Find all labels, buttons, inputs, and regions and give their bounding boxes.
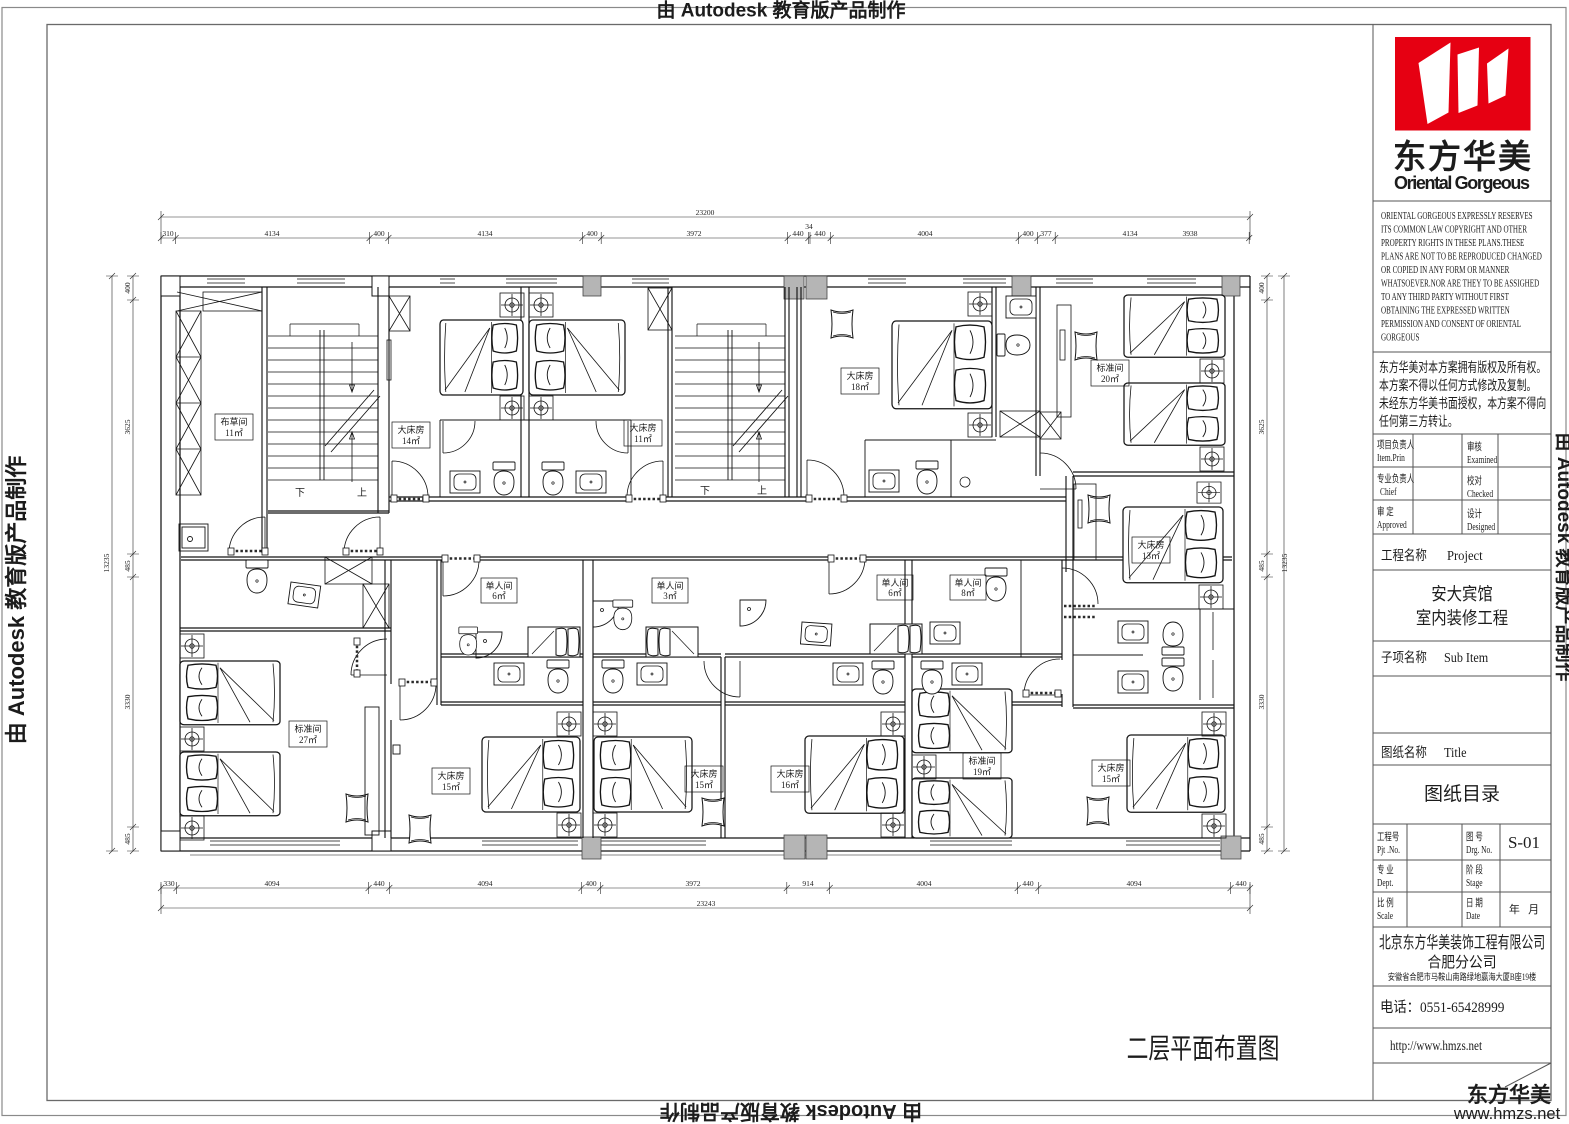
- svg-text:485: 485: [123, 833, 132, 845]
- svg-text:大床房: 大床房: [776, 768, 803, 779]
- svg-text:Dept.: Dept.: [1377, 877, 1393, 889]
- svg-text:大床房: 大床房: [1137, 539, 1164, 550]
- svg-text:上: 上: [757, 485, 767, 497]
- svg-text:11㎡: 11㎡: [634, 434, 652, 444]
- svg-text:Oriental Gorgeous: Oriental Gorgeous: [1394, 173, 1530, 193]
- svg-text:下: 下: [295, 488, 305, 499]
- svg-text:4094: 4094: [1127, 879, 1142, 888]
- svg-text:大床房: 大床房: [397, 424, 424, 435]
- svg-text:Stage: Stage: [1466, 877, 1483, 889]
- svg-text:标准间: 标准间: [294, 723, 321, 734]
- svg-text:PERMISSION AND CONSENT OF ORIE: PERMISSION AND CONSENT OF ORIENTAL: [1381, 318, 1521, 330]
- svg-text:15㎡: 15㎡: [442, 782, 460, 792]
- svg-text:3625: 3625: [123, 419, 132, 434]
- svg-text:400: 400: [123, 282, 132, 294]
- svg-text:S-01: S-01: [1508, 833, 1540, 852]
- svg-text:单人间: 单人间: [656, 580, 683, 591]
- svg-text:OBTAINING THE EXPRESSED WRITTE: OBTAINING THE EXPRESSED WRITTEN: [1381, 304, 1510, 316]
- svg-text:合肥分公司: 合肥分公司: [1428, 953, 1497, 971]
- svg-text:Title: Title: [1444, 745, 1467, 760]
- svg-text:大床房: 大床房: [629, 422, 656, 433]
- svg-text:图纸目录: 图纸目录: [1424, 783, 1500, 805]
- svg-text:由 Autodesk 教育版产品制作: 由 Autodesk 教育版产品制作: [660, 1100, 922, 1124]
- svg-text:由 Autodesk 教育版产品制作: 由 Autodesk 教育版产品制作: [4, 456, 29, 744]
- svg-text:安大宾馆: 安大宾馆: [1431, 584, 1493, 604]
- svg-text:15㎡: 15㎡: [695, 780, 713, 790]
- svg-text:310: 310: [162, 229, 174, 238]
- svg-text:设计: 设计: [1467, 507, 1482, 520]
- svg-text:大床房: 大床房: [846, 370, 873, 381]
- svg-text:440: 440: [1022, 879, 1034, 888]
- svg-text:19㎡: 19㎡: [973, 767, 991, 777]
- svg-text:专 业: 专 业: [1377, 863, 1394, 876]
- svg-text:4004: 4004: [918, 229, 933, 238]
- svg-text:由 Autodesk 教育版产品制作: 由 Autodesk 教育版产品制作: [656, 0, 905, 22]
- svg-text:4004: 4004: [917, 879, 932, 888]
- svg-text:年 月: 年 月: [1509, 902, 1539, 916]
- svg-text:3972: 3972: [686, 879, 701, 888]
- svg-text:440: 440: [792, 229, 804, 238]
- svg-text:TO ANY THIRD PARTY WITHOUT FIR: TO ANY THIRD PARTY WITHOUT FIRST: [1381, 291, 1509, 303]
- svg-text:4134: 4134: [265, 229, 280, 238]
- svg-text:PLANS ARE NOT TO BE REPRODUCED: PLANS ARE NOT TO BE REPRODUCED CHANGED: [1381, 250, 1542, 262]
- svg-text:Checked: Checked: [1467, 488, 1493, 500]
- svg-text:6㎡: 6㎡: [888, 588, 902, 598]
- svg-text:11㎡: 11㎡: [225, 428, 243, 438]
- svg-text:工程名称: 工程名称: [1381, 547, 1427, 563]
- svg-text:440: 440: [1235, 879, 1247, 888]
- svg-text:3㎡: 3㎡: [663, 591, 677, 601]
- svg-text:3972: 3972: [687, 229, 702, 238]
- svg-text:3330: 3330: [1257, 694, 1266, 709]
- svg-text:单人间: 单人间: [485, 580, 512, 591]
- svg-text:ORIENTAL GORGEOUS EXPRESSLY RE: ORIENTAL GORGEOUS EXPRESSLY RESERVES: [1381, 210, 1533, 222]
- svg-text:校对: 校对: [1467, 474, 1482, 487]
- svg-text:http://www.hmzs.net: http://www.hmzs.net: [1390, 1038, 1483, 1053]
- svg-text:18㎡: 18㎡: [851, 382, 869, 392]
- svg-text:400: 400: [1257, 282, 1266, 294]
- svg-text:日 期: 日 期: [1466, 897, 1483, 909]
- svg-text:13235: 13235: [1280, 553, 1289, 572]
- svg-text:二层平面布置图: 二层平面布置图: [1127, 1033, 1280, 1064]
- svg-text:4094: 4094: [265, 879, 280, 888]
- svg-text:8㎡: 8㎡: [961, 588, 975, 598]
- svg-text:审核: 审核: [1467, 440, 1482, 453]
- svg-text:由 Autodesk 教育版产品制作: 由 Autodesk 教育版产品制作: [1553, 432, 1569, 681]
- svg-text:Project: Project: [1447, 547, 1483, 563]
- svg-text:15㎡: 15㎡: [1102, 774, 1120, 784]
- svg-text:www.hmzs.net: www.hmzs.net: [1453, 1105, 1561, 1123]
- svg-text:Pjt .No.: Pjt .No.: [1377, 844, 1400, 856]
- svg-text:标准间: 标准间: [1096, 362, 1123, 373]
- svg-text:400: 400: [585, 879, 597, 888]
- svg-text:安徽省合肥市马鞍山南路绿地赢海大厦B座19楼: 安徽省合肥市马鞍山南路绿地赢海大厦B座19楼: [1388, 971, 1536, 982]
- svg-text:27㎡: 27㎡: [299, 735, 317, 745]
- svg-text:图 号: 图 号: [1466, 831, 1483, 843]
- svg-text:室内装修工程: 室内装修工程: [1416, 608, 1508, 628]
- svg-text:Designed: Designed: [1467, 521, 1495, 533]
- svg-text:审 定: 审 定: [1377, 505, 1394, 518]
- svg-text:400: 400: [586, 229, 598, 238]
- svg-text:4134: 4134: [1123, 229, 1138, 238]
- svg-text:大床房: 大床房: [690, 768, 717, 779]
- svg-text:13㎡: 13㎡: [1142, 551, 1160, 561]
- svg-text:914: 914: [802, 879, 814, 888]
- svg-text:未经东方华美书面授权，本方案不得向: 未经东方华美书面授权，本方案不得向: [1379, 395, 1546, 411]
- svg-text:14㎡: 14㎡: [402, 436, 420, 446]
- svg-text:400: 400: [373, 229, 385, 238]
- svg-text:485: 485: [123, 560, 132, 572]
- svg-text:标准间: 标准间: [968, 755, 995, 766]
- svg-text:16㎡: 16㎡: [781, 780, 799, 790]
- svg-text:Sub Item: Sub Item: [1444, 650, 1488, 665]
- svg-text:Chief: Chief: [1380, 486, 1397, 498]
- svg-text:比 例: 比 例: [1377, 896, 1394, 909]
- svg-text:东方华美: 东方华美: [1467, 1083, 1551, 1107]
- svg-text:大床房: 大床房: [1097, 762, 1124, 773]
- svg-text:电话：0551-65428999: 电话：0551-65428999: [1380, 1000, 1504, 1017]
- svg-text:PROPERTY RIGHTS IN THESE PLANS: PROPERTY RIGHTS IN THESE PLANS.THESE: [1381, 237, 1525, 249]
- svg-text:440: 440: [814, 229, 826, 238]
- svg-text:东方华美对本方案拥有版权及所有权。: 东方华美对本方案拥有版权及所有权。: [1379, 359, 1546, 375]
- svg-text:4094: 4094: [478, 879, 493, 888]
- svg-text:485: 485: [1257, 560, 1266, 572]
- svg-text:专业负责人: 专业负责人: [1377, 472, 1414, 485]
- svg-text:大床房: 大床房: [437, 770, 464, 781]
- svg-text:单人间: 单人间: [881, 577, 908, 588]
- svg-text:阶 段: 阶 段: [1466, 863, 1483, 876]
- svg-text:工程号: 工程号: [1377, 831, 1399, 843]
- svg-text:Drg. No.: Drg. No.: [1466, 844, 1492, 856]
- svg-text:下: 下: [700, 486, 710, 497]
- svg-text:3938: 3938: [1183, 229, 1198, 238]
- svg-text:377: 377: [1040, 229, 1052, 238]
- svg-text:本方案不得以任何方式修改及复制。: 本方案不得以任何方式修改及复制。: [1379, 377, 1536, 393]
- svg-text:Scale: Scale: [1377, 910, 1393, 922]
- svg-text:Examined: Examined: [1467, 454, 1498, 466]
- svg-text:440: 440: [373, 879, 385, 888]
- svg-text:6㎡: 6㎡: [492, 591, 506, 601]
- svg-text:北京东方华美装饰工程有限公司: 北京东方华美装饰工程有限公司: [1379, 933, 1545, 953]
- svg-text:400: 400: [1022, 229, 1034, 238]
- svg-text:ITS COMMON LAW COPYRIGHT AND O: ITS COMMON LAW COPYRIGHT AND OTHER: [1381, 223, 1528, 235]
- svg-text:13235: 13235: [102, 553, 111, 572]
- svg-text:布草间: 布草间: [220, 416, 247, 427]
- svg-text:23200: 23200: [696, 208, 715, 217]
- svg-text:3330: 3330: [123, 694, 132, 709]
- svg-text:WHATSOEVER.NOR ARE THEY TO BE: WHATSOEVER.NOR ARE THEY TO BE ASSIGHED: [1381, 277, 1540, 289]
- svg-text:OR COPIED IN ANY FORM OR MANNE: OR COPIED IN ANY FORM OR MANNER: [1381, 264, 1510, 276]
- svg-text:上: 上: [357, 487, 367, 499]
- svg-text:图纸名称: 图纸名称: [1381, 744, 1427, 760]
- svg-text:任何第三方转让。: 任何第三方转让。: [1379, 413, 1458, 429]
- svg-text:GORGEOUS: GORGEOUS: [1381, 331, 1419, 343]
- svg-text:项目负责人: 项目负责人: [1377, 438, 1414, 451]
- svg-text:20㎡: 20㎡: [1101, 374, 1119, 384]
- svg-text:单人间: 单人间: [954, 577, 981, 588]
- svg-text:4134: 4134: [478, 229, 493, 238]
- svg-text:485: 485: [1257, 833, 1266, 845]
- svg-text:23243: 23243: [697, 899, 716, 908]
- svg-text:子项名称: 子项名称: [1381, 649, 1427, 665]
- svg-text:Date: Date: [1466, 910, 1480, 922]
- svg-text:3625: 3625: [1257, 419, 1266, 434]
- svg-text:Approved: Approved: [1377, 519, 1407, 531]
- svg-text:34: 34: [805, 222, 813, 231]
- svg-text:Item.Prin: Item.Prin: [1377, 452, 1405, 464]
- svg-text:330: 330: [163, 879, 175, 888]
